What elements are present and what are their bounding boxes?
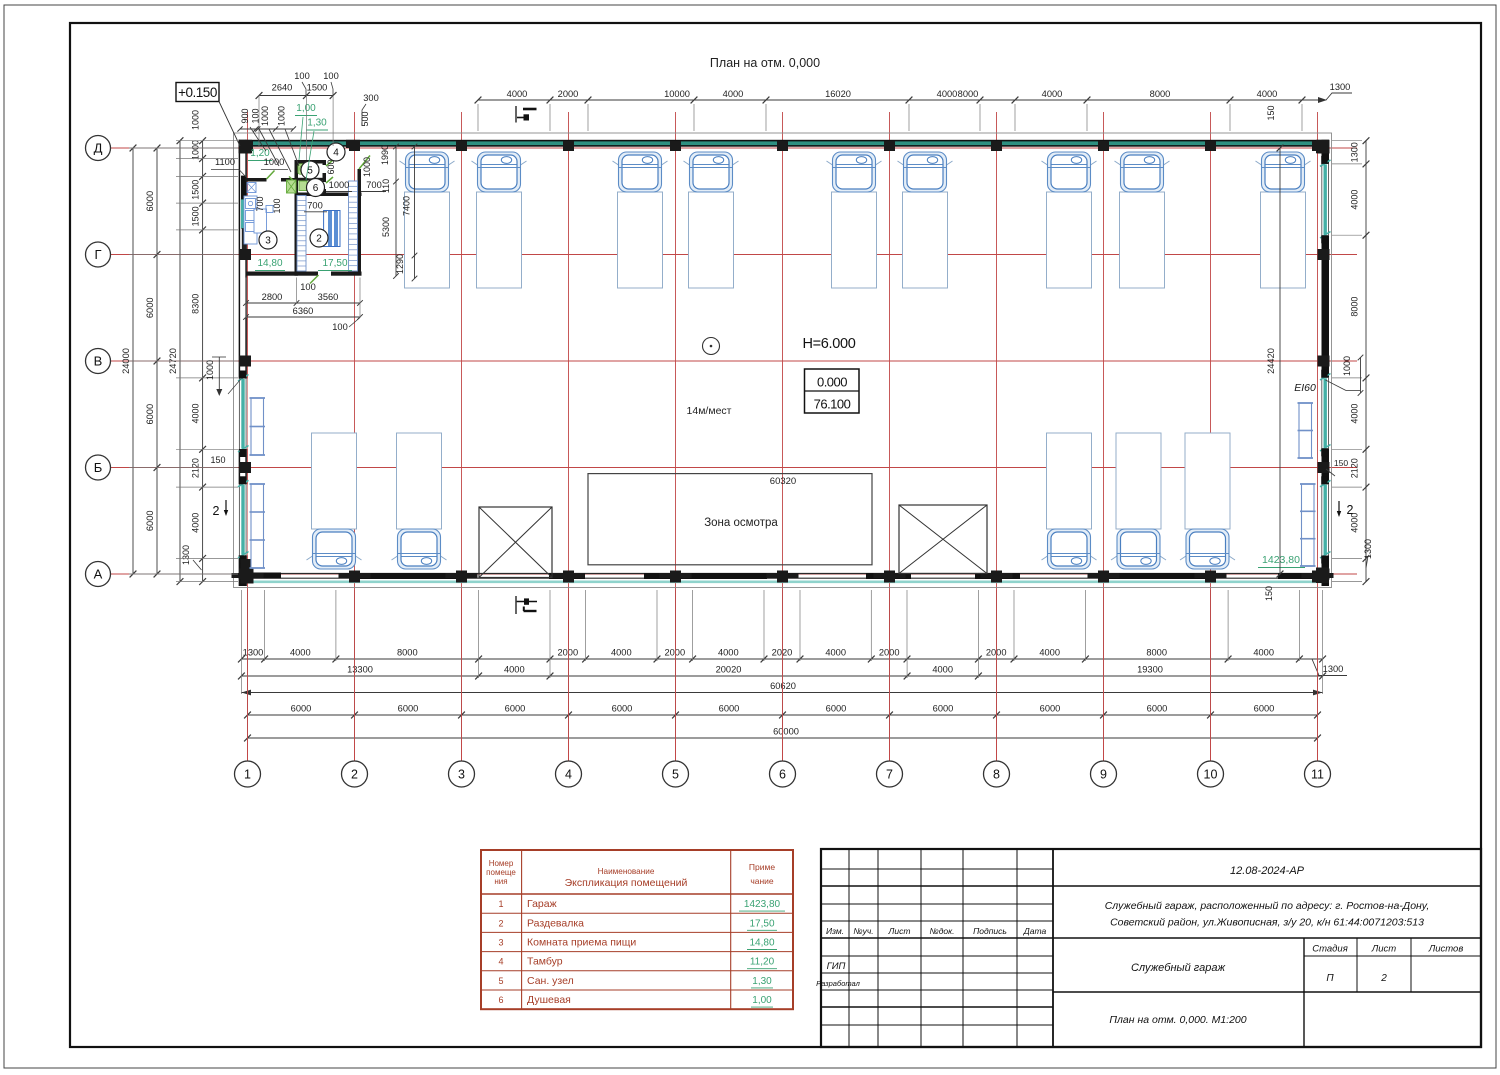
svg-text:900: 900 [240,108,250,123]
svg-text:150: 150 [210,455,225,465]
svg-text:2: 2 [213,504,220,518]
svg-text:5: 5 [672,768,679,782]
svg-text:Подпись: Подпись [973,926,1007,936]
svg-text:700: 700 [366,180,382,190]
svg-text:2: 2 [498,918,503,928]
svg-text:8000: 8000 [1146,648,1167,658]
svg-text:14,80: 14,80 [749,938,774,949]
svg-text:8: 8 [993,768,1000,782]
svg-text:План на отм. 0,000. М1:200: План на отм. 0,000. М1:200 [1109,1014,1246,1026]
svg-text:600: 600 [326,159,336,174]
svg-text:1,00: 1,00 [752,995,772,1006]
svg-text:6: 6 [779,768,786,782]
svg-text:1500: 1500 [191,206,201,226]
svg-text:17,50: 17,50 [749,918,774,929]
svg-text:1423,80: 1423,80 [1262,554,1300,566]
svg-text:Разработал: Разработал [816,979,860,988]
svg-text:6360: 6360 [293,306,314,316]
svg-text:№уч.: №уч. [853,926,873,936]
svg-text:Приме: Приме [749,862,775,872]
svg-text:Г: Г [94,247,101,262]
svg-text:1000: 1000 [329,180,350,190]
svg-text:5: 5 [498,976,503,986]
svg-text:6: 6 [498,995,503,1005]
svg-text:1290: 1290 [395,254,405,274]
svg-text:9: 9 [1100,768,1107,782]
svg-text:4000: 4000 [718,648,739,658]
svg-text:1000: 1000 [1342,356,1352,376]
svg-text:1423,80: 1423,80 [744,899,781,910]
svg-text:4000: 4000 [1350,190,1360,210]
svg-text:6000: 6000 [398,704,419,714]
svg-text:12.08-2024-АР: 12.08-2024-АР [1230,865,1305,877]
svg-text:Б: Б [94,460,103,475]
svg-text:3560: 3560 [318,292,339,302]
svg-text:110: 110 [381,179,391,193]
svg-text:П: П [1326,973,1334,984]
svg-text:17,50: 17,50 [322,258,347,269]
svg-text:Тамбур: Тамбур [527,956,563,968]
svg-text:1000: 1000 [260,106,270,126]
svg-text:Раздевалка: Раздевалка [527,917,584,929]
svg-text:6000: 6000 [145,510,155,531]
svg-text:2120: 2120 [1350,458,1360,478]
svg-text:100: 100 [332,322,348,332]
svg-text:6000: 6000 [145,297,155,318]
svg-text:4000: 4000 [1350,513,1360,533]
svg-text:4000: 4000 [191,403,201,423]
svg-text:1000: 1000 [277,106,287,126]
svg-text:19300: 19300 [1137,665,1163,675]
svg-text:300: 300 [363,93,379,103]
svg-text:100: 100 [294,71,310,81]
svg-text:Гараж: Гараж [527,898,557,910]
svg-text:Зона осмотра: Зона осмотра [704,517,778,529]
svg-text:3: 3 [458,768,465,782]
svg-text:10000: 10000 [664,89,690,99]
svg-text:6000: 6000 [1147,704,1168,714]
svg-text:2020: 2020 [772,648,793,658]
svg-text:4000: 4000 [1257,89,1278,99]
svg-text:11: 11 [1311,768,1324,782]
svg-text:2: 2 [1380,973,1387,984]
svg-text:1300: 1300 [181,545,191,565]
svg-text:1300: 1300 [1330,82,1351,92]
svg-text:6000: 6000 [933,704,954,714]
svg-text:100: 100 [251,108,261,123]
svg-text:4000: 4000 [507,89,528,99]
svg-text:6000: 6000 [145,404,155,425]
svg-text:2000: 2000 [558,89,579,99]
svg-text:4: 4 [498,957,503,967]
svg-text:2120: 2120 [191,458,201,478]
svg-text:H=6.000: H=6.000 [802,336,855,352]
svg-text:1,30: 1,30 [307,118,327,129]
svg-text:100: 100 [272,198,282,213]
svg-text:2: 2 [316,234,322,245]
svg-text:Служебный гараж: Служебный гараж [1131,962,1225,974]
svg-text:План на отм. 0,000: План на отм. 0,000 [710,56,820,70]
svg-text:чание: чание [750,876,774,886]
svg-text:4000: 4000 [723,89,744,99]
svg-text:4000: 4000 [1039,648,1060,658]
svg-text:Сан. узел: Сан. узел [527,975,574,987]
svg-text:3: 3 [498,938,503,948]
svg-text:2800: 2800 [262,292,283,302]
svg-text:Лист: Лист [888,926,911,936]
svg-text:6000: 6000 [719,704,740,714]
svg-text:60320: 60320 [770,476,796,487]
svg-text:Номер: Номер [489,859,514,868]
svg-text:4000: 4000 [504,665,525,675]
svg-text:В: В [94,354,103,369]
svg-text:700: 700 [255,196,265,211]
svg-text:6000: 6000 [1254,704,1275,714]
svg-text:7400: 7400 [402,196,412,216]
svg-text:4000: 4000 [191,513,201,533]
svg-text:60000: 60000 [773,727,799,737]
svg-text:14,80: 14,80 [257,258,282,269]
svg-text:ния: ния [494,877,507,886]
svg-text:100: 100 [323,71,339,81]
svg-text:6000: 6000 [145,191,155,212]
svg-text:4000: 4000 [1253,648,1274,658]
svg-text:6000: 6000 [612,704,633,714]
svg-text:Советский район, ул.Живописная: Советский район, ул.Живописная, з/у 20, … [1110,917,1424,929]
svg-text:6000: 6000 [826,704,847,714]
svg-text:2: 2 [351,768,358,782]
svg-text:6: 6 [313,183,319,194]
svg-text:4000: 4000 [1042,89,1063,99]
svg-text:1300: 1300 [243,648,264,658]
svg-text:1000: 1000 [362,157,372,177]
svg-text:1000: 1000 [191,140,201,160]
svg-text:1: 1 [498,899,503,909]
svg-text:0.000: 0.000 [817,375,847,390]
svg-text:Стадия: Стадия [1312,944,1348,955]
svg-text:2000: 2000 [557,648,578,658]
svg-text:6000: 6000 [505,704,526,714]
svg-text:4000: 4000 [937,89,958,99]
svg-text:4: 4 [565,768,572,782]
svg-text:1500: 1500 [307,83,328,93]
svg-text:Наименование: Наименование [598,867,655,876]
svg-text:4000: 4000 [932,665,953,675]
svg-text:500: 500 [360,111,370,126]
svg-text:4000: 4000 [290,648,311,658]
svg-text:8000: 8000 [958,89,979,99]
svg-text:4000: 4000 [1350,404,1360,424]
svg-text:4: 4 [333,148,339,159]
svg-text:1990: 1990 [380,145,390,165]
svg-text:16020: 16020 [825,89,851,99]
svg-text:Дата: Дата [1023,926,1047,936]
svg-text:150: 150 [1264,586,1274,601]
svg-text:1: 1 [244,768,251,782]
svg-text:1000: 1000 [264,157,285,167]
svg-text:помеще: помеще [486,868,516,877]
svg-text:6000: 6000 [291,704,312,714]
svg-text:150: 150 [1266,105,1276,120]
svg-text:20020: 20020 [716,665,742,675]
svg-text:Служебный гараж, расположенны: Служебный гараж, расположенный по адресу… [1105,900,1430,912]
svg-text:№док.: №док. [929,926,954,936]
svg-text:А: А [94,567,103,582]
svg-text:4000: 4000 [825,648,846,658]
svg-text:10: 10 [1204,768,1218,782]
svg-text:Д: Д [94,141,103,156]
svg-text:+0.150: +0.150 [178,85,217,100]
svg-text:Комната приема пищи: Комната приема пищи [527,937,636,949]
svg-text:1300: 1300 [1350,142,1360,162]
svg-text:Лист: Лист [1371,944,1397,955]
svg-text:EI60: EI60 [1294,382,1316,394]
svg-text:Душевая: Душевая [527,994,571,1006]
svg-text:7: 7 [886,768,893,782]
svg-text:700: 700 [307,201,323,211]
svg-text:76.100: 76.100 [814,397,851,412]
svg-text:4000: 4000 [611,648,632,658]
svg-text:8000: 8000 [397,648,418,658]
svg-text:8000: 8000 [1150,89,1171,99]
svg-text:24420: 24420 [1266,348,1276,374]
svg-text:1,30: 1,30 [752,976,772,987]
svg-text:100: 100 [300,282,316,292]
svg-text:1500: 1500 [191,180,201,200]
svg-text:5300: 5300 [381,217,391,237]
svg-text:8000: 8000 [1350,297,1360,317]
svg-text:Экспликация помещений: Экспликация помещений [565,877,688,889]
svg-text:14м/мест: 14м/мест [687,405,732,417]
svg-text:Изм.: Изм. [826,926,844,936]
svg-text:1000: 1000 [191,110,201,130]
svg-text:60620: 60620 [770,681,796,691]
svg-text:150: 150 [1334,458,1348,468]
svg-text:2000: 2000 [664,648,685,658]
svg-text:8300: 8300 [191,294,201,314]
svg-text:11,20: 11,20 [750,957,775,968]
svg-text:6000: 6000 [1040,704,1061,714]
svg-text:13300: 13300 [347,665,373,675]
svg-text:2640: 2640 [272,83,293,93]
svg-text:Листов: Листов [1428,944,1464,955]
svg-text:ГИП: ГИП [827,961,846,972]
svg-text:1000: 1000 [205,360,215,380]
svg-text:3: 3 [265,236,271,247]
